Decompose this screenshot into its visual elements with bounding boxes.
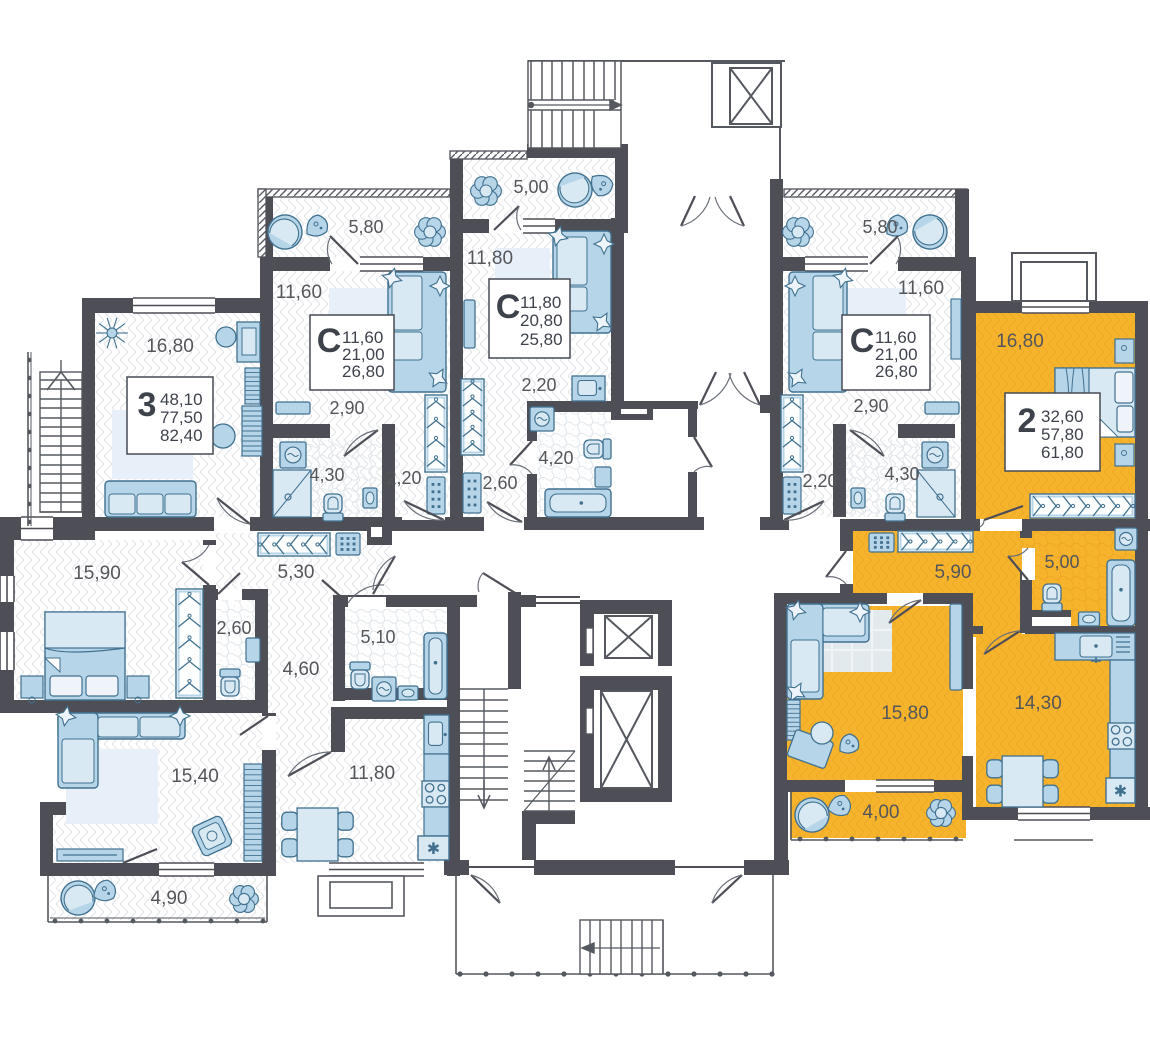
svg-text:32,60: 32,60 — [1041, 407, 1084, 426]
svg-text:С: С — [317, 322, 342, 360]
svg-text:5,80: 5,80 — [862, 217, 897, 237]
svg-text:✱: ✱ — [1114, 784, 1127, 801]
svg-text:11,80: 11,80 — [520, 293, 561, 312]
svg-text:14,30: 14,30 — [1014, 693, 1062, 714]
svg-text:2: 2 — [1018, 402, 1037, 440]
svg-text:61,80: 61,80 — [1041, 443, 1084, 462]
svg-text:С: С — [496, 288, 521, 326]
svg-text:15,80: 15,80 — [881, 703, 929, 724]
svg-text:16,80: 16,80 — [996, 331, 1044, 352]
svg-text:11,80: 11,80 — [349, 763, 395, 784]
svg-text:2,60: 2,60 — [216, 618, 251, 638]
svg-text:✱: ✱ — [427, 841, 440, 858]
svg-text:5,10: 5,10 — [360, 627, 395, 647]
svg-text:С: С — [850, 322, 875, 360]
svg-text:5,80: 5,80 — [348, 217, 383, 237]
svg-text:11,60: 11,60 — [276, 282, 322, 303]
svg-text:25,80: 25,80 — [520, 330, 563, 349]
svg-text:3: 3 — [138, 386, 157, 424]
svg-text:5,00: 5,00 — [513, 177, 548, 197]
svg-text:26,80: 26,80 — [342, 362, 385, 381]
svg-text:5,90: 5,90 — [935, 562, 972, 583]
svg-text:77,50: 77,50 — [160, 408, 203, 427]
svg-text:11,80: 11,80 — [467, 248, 513, 269]
svg-text:16,80: 16,80 — [146, 336, 194, 357]
svg-text:4,90: 4,90 — [151, 888, 188, 909]
svg-text:15,40: 15,40 — [171, 766, 219, 787]
svg-text:2,20: 2,20 — [386, 468, 421, 488]
svg-text:26,80: 26,80 — [875, 362, 918, 381]
svg-text:2,20: 2,20 — [802, 471, 837, 491]
svg-text:4,60: 4,60 — [283, 659, 320, 680]
svg-text:4,00: 4,00 — [863, 802, 900, 823]
svg-text:5,30: 5,30 — [278, 562, 315, 583]
svg-text:15,90: 15,90 — [73, 563, 121, 584]
svg-text:4,20: 4,20 — [538, 448, 573, 468]
svg-text:48,10: 48,10 — [160, 390, 203, 409]
svg-text:57,80: 57,80 — [1041, 425, 1084, 444]
svg-text:2,90: 2,90 — [853, 396, 888, 416]
svg-text:20,80: 20,80 — [520, 311, 563, 330]
svg-text:11,60: 11,60 — [898, 278, 944, 299]
svg-text:4,30: 4,30 — [309, 465, 344, 485]
svg-text:5,00: 5,00 — [1044, 552, 1079, 572]
svg-text:2,60: 2,60 — [482, 473, 517, 493]
svg-text:4,30: 4,30 — [884, 464, 919, 484]
svg-text:2,90: 2,90 — [329, 398, 364, 418]
svg-text:2,20: 2,20 — [521, 375, 556, 395]
svg-text:82,40: 82,40 — [160, 426, 203, 445]
